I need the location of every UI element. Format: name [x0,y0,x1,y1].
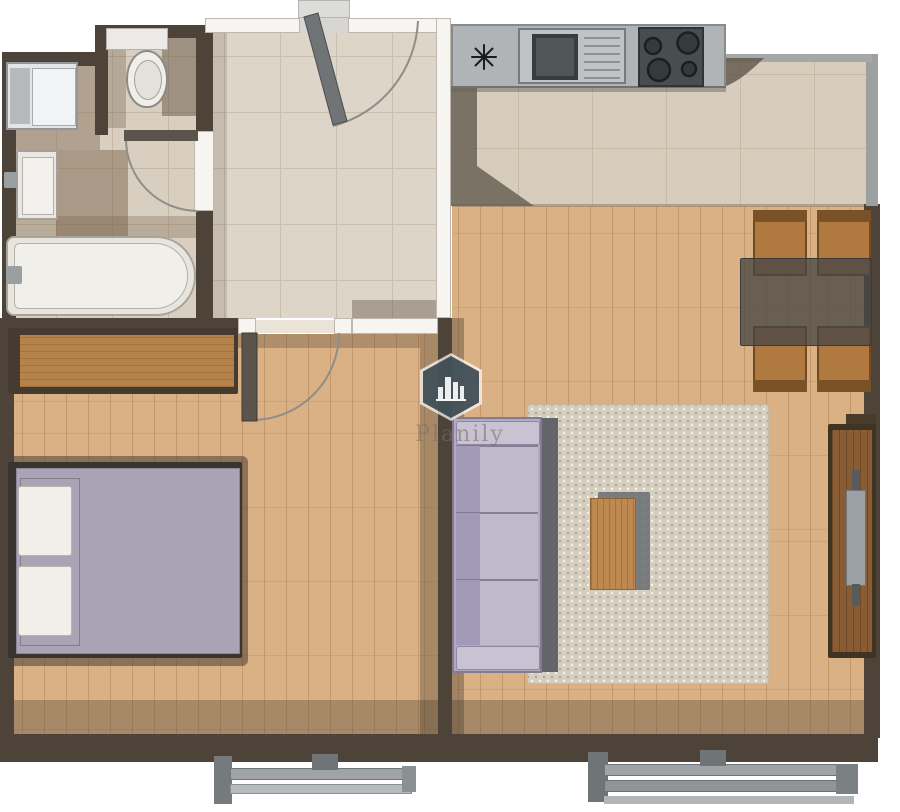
cooktop-burners-icon [645,33,699,82]
watermark-text: Planily [395,422,525,447]
counter-end-shadow [726,58,764,86]
entrance-door [304,13,418,126]
star-symbol-icon [472,45,496,69]
kitchen-wall-shadow-wedge [451,88,534,206]
bedroom-door [242,333,339,421]
floor-plan: Planily [0,0,900,812]
bathroom-door [124,130,198,211]
logo-buildings-icon [436,373,466,401]
